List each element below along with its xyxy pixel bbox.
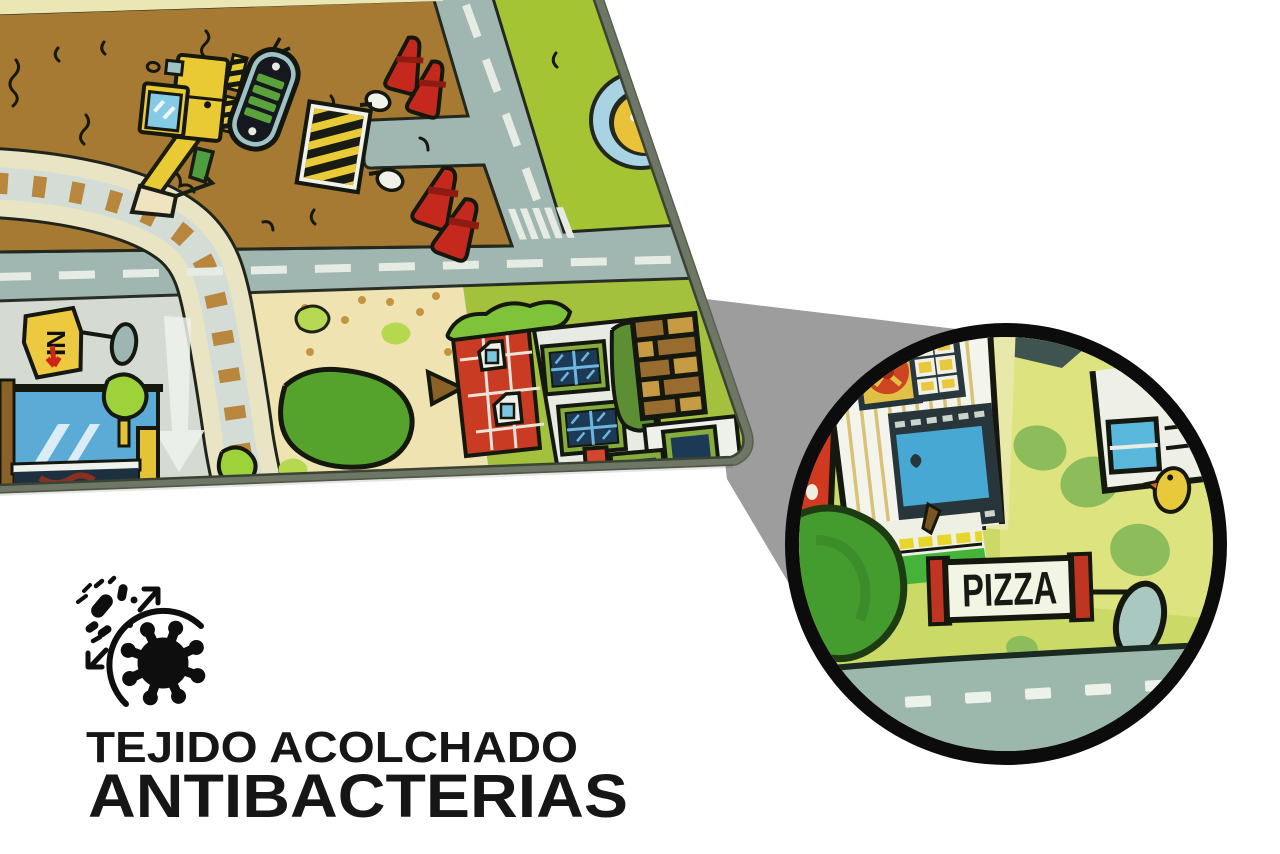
svg-text:IN: IN	[41, 330, 71, 356]
svg-text:ANTIBACTERIAS: ANTIBACTERIAS	[88, 762, 628, 830]
svg-text:PIZZA: PIZZA	[961, 561, 1058, 616]
